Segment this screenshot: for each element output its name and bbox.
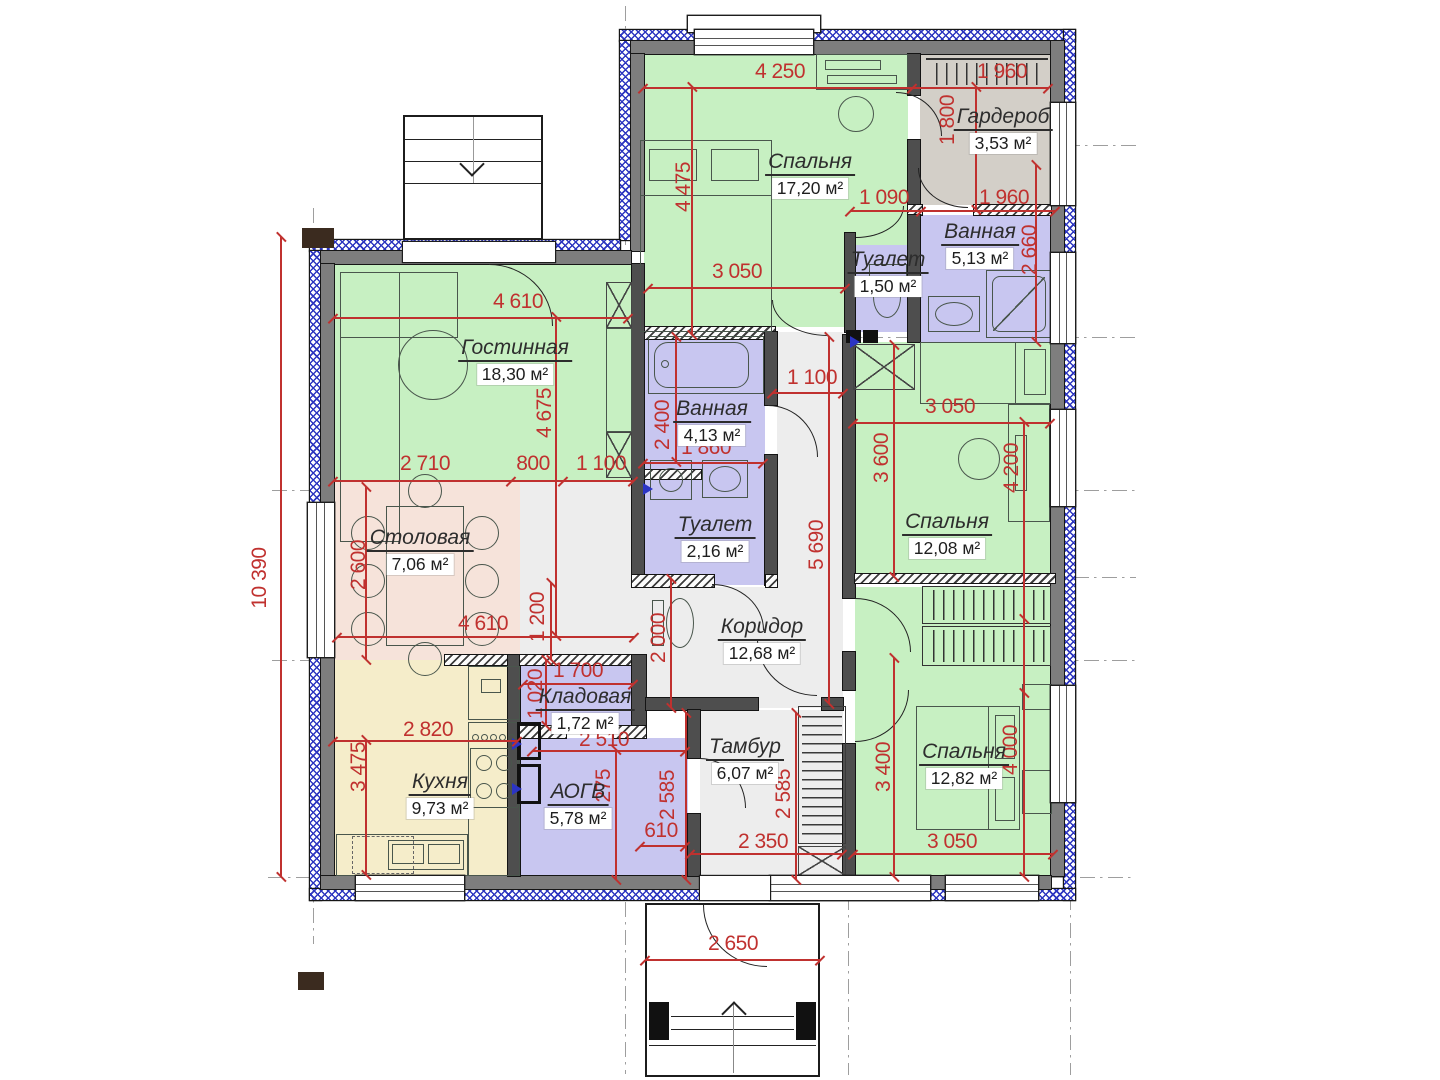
dim-label: 3 050 [927,830,977,854]
axis-line [1070,895,1071,1075]
decoration [711,149,759,181]
dim-line [337,636,634,638]
window [1051,686,1075,802]
closet-row [922,586,1051,624]
decoration [481,679,501,693]
room-label-living: Гостинная 18,30 м² [458,336,572,385]
partition-hatched [445,655,513,665]
decoration [709,466,741,492]
dim-label: 3 400 [872,742,896,792]
decoration [825,60,881,70]
room-area: 5,78 м² [545,808,612,829]
dim-line [648,287,845,289]
decoration [496,755,512,771]
dim-line [1023,619,1025,877]
dim-label: 1 100 [576,452,626,476]
dim-line [640,845,685,847]
decoration [1015,343,1016,403]
room-label-bath-513: Ванная 5,13 м² [941,220,1019,269]
window [946,876,1038,900]
room-area: 6,07 м² [712,763,779,784]
kitchen-unit-dashed [352,836,414,874]
decoration [661,360,669,368]
dim-label: 4 200 [1000,443,1024,493]
room-name: Кухня [409,770,471,796]
sink [928,296,980,332]
room-label-bath-413: Ванная 4,13 м² [673,397,751,446]
dim-label: 2 400 [651,400,675,450]
vent-marker [512,783,522,795]
decoration [946,884,1038,885]
corner-block [298,972,324,990]
decoration [405,183,541,184]
dim-label: 3 600 [870,433,894,483]
nightstand [1022,684,1052,710]
dim-label: 4 610 [493,290,543,314]
decoration [1066,253,1067,343]
room-area: 7,06 м² [387,554,454,575]
decoration [324,503,325,657]
room-area: 18,30 м² [477,364,554,385]
hall-cabinet [798,846,846,876]
window [308,503,334,657]
decoration [641,195,771,196]
dim-line [280,237,282,877]
partition [646,698,758,710]
dim-label: 1 700 [553,659,603,683]
window [770,876,930,900]
cabinet [606,328,632,432]
dim-label: 2 000 [647,613,671,663]
dim-label: 610 [644,819,678,843]
dim-label: 1 090 [859,186,909,210]
room-label-wardrobe: Гардероб 3,53 м² [954,105,1053,154]
room-name: АОГВ [548,780,609,806]
decoration [827,75,897,84]
dim-line [772,392,843,394]
fridge [468,666,520,720]
window [1051,410,1075,506]
partition [843,652,855,690]
decoration [496,783,512,799]
porch-top [403,115,543,240]
room-name: Гостинная [458,336,572,362]
decoration [1059,410,1060,506]
room-area: 3,53 м² [970,133,1037,154]
dim-line [333,480,633,482]
dim-line [850,210,1055,212]
vent-marker [850,336,860,348]
door-opening [700,876,770,900]
door-arc [772,300,828,336]
dim-line [643,462,763,464]
bathtub [648,336,764,394]
dim-line [333,317,628,319]
dim-label: 3 475 [347,742,371,792]
chair [838,96,874,132]
door-opening [403,242,555,262]
arrow-up-icon [721,1001,746,1026]
room-label-bedroom-1208: Спальня 12,08 м² [902,510,992,559]
room-label-corridor: Коридор 12,68 м² [718,615,806,664]
decoration [1066,410,1067,506]
vent-marker [643,483,653,495]
window [1051,253,1075,343]
hall-wardrobe [798,706,846,844]
dim-label: 4 675 [533,388,557,438]
room-name: Столовая [367,526,474,552]
decoration [1059,253,1060,343]
room-label-kitchen: Кухня 9,73 м² [407,770,474,819]
dim-line [550,583,552,660]
chair [351,612,385,646]
room-label-bedroom-17: Спальня 17,20 м² [765,150,855,199]
dim-label: 2 650 [708,932,758,956]
decoration [356,884,464,885]
dim-label: 4 475 [672,162,696,212]
decoration [1059,686,1060,802]
room-name: Кладовая [536,685,635,711]
desk [816,54,908,90]
room-area: 1,50 м² [855,276,922,297]
cabinet-box [606,282,632,328]
room-area: 12,82 м² [926,768,1003,789]
decoration [316,503,317,657]
decoration [356,891,464,892]
chair [958,438,1000,480]
room-area: 2,16 м² [682,541,749,562]
axis-line [1065,145,1137,146]
window [695,30,813,54]
dim-label: 1 960 [979,186,1029,210]
dim-label: 800 [516,452,550,476]
decoration [649,1002,669,1040]
axis-line [848,895,849,1075]
dim-label: 3 050 [925,395,975,419]
room-label-dining: Столовая 7,06 м² [367,526,474,575]
ext-wall [631,41,1051,54]
room-area: 4,13 м² [679,425,746,446]
decoration [695,38,813,39]
dim-label: 2 660 [1018,225,1042,275]
decoration [476,783,492,799]
sofa [340,272,400,542]
dim-label: 5 690 [805,520,829,570]
decoration [1066,103,1067,205]
dim-label: 2 710 [400,452,450,476]
room-name: Тамбур [706,735,784,761]
decoration [993,277,1045,331]
room-name: Гардероб [954,105,1053,131]
room-area: 12,08 м² [909,538,986,559]
dim-label: 4 610 [458,612,508,636]
room-name: Коридор [718,615,806,641]
decoration [796,1002,816,1040]
room-name: Спальня [919,740,1009,766]
ext-wall-insulation [620,41,631,240]
room-area: 9,73 м² [407,798,474,819]
nightstand [1022,770,1052,814]
room-label-pantry: Кладовая 1,72 м² [536,685,635,734]
partition-hatched [855,574,1055,583]
decoration [1059,103,1060,205]
room-label-bedroom-1282: Спальня 12,82 м² [919,740,1009,789]
washing-machine [650,460,692,500]
corner-block [302,228,334,248]
partition [688,814,700,876]
room-area: 17,20 м² [772,178,849,199]
decoration [770,891,930,892]
decoration [476,755,492,771]
dim-label: 1 100 [787,366,837,390]
dim-label: 10 390 [248,547,272,608]
room-label-vestibule: Тамбур 6,07 м² [706,735,784,784]
room-label-toilet-150: Туалет 1,50 м² [848,248,929,297]
dim-line [643,87,1048,89]
dim-label: 2 350 [738,830,788,854]
equipment-block [863,330,878,343]
sink [702,460,748,498]
room-name: Ванная [941,220,1019,246]
dim-label: 2 585 [656,770,680,820]
room-name: Ванная [673,397,751,423]
decoration [1066,686,1067,802]
room-area: 12,68 м² [724,643,801,664]
dim-label: 4 250 [755,60,805,84]
partition-hatched [766,575,777,587]
room-name: Туалет [675,513,756,539]
decoration [659,468,683,492]
vent-shaft [853,344,915,390]
room-name: Туалет [848,248,929,274]
decoration [1024,349,1046,395]
closet-row [922,626,1051,666]
dim-label: 1 960 [977,60,1027,84]
window [1051,103,1075,205]
chair [408,642,442,676]
partition [765,455,777,585]
dim-line [853,422,1050,424]
dim-label: 3 050 [712,260,762,284]
dim-label: 1 200 [526,592,550,642]
room-label-boiler: АОГВ 5,78 м² [545,780,612,829]
arrow-down-icon [459,151,484,176]
decoration [695,45,813,46]
room-label-toilet-216: Туалет 2,16 м² [675,513,756,562]
dim-label: 2 820 [403,718,453,742]
dim-line [645,959,820,961]
shower [986,270,1052,338]
decoration [946,891,1038,892]
decoration [770,884,930,885]
floor-plan: 4 250 1 960 1 800 4 475 1 090 1 960 2 66… [0,0,1440,1080]
bed [640,140,772,332]
room-area: 5,13 м² [947,248,1014,269]
window [356,876,464,900]
stove [470,748,518,808]
decoration [428,844,460,864]
room-name: Спальня [902,510,992,536]
room-name: Спальня [765,150,855,176]
room-area: 1,72 м² [552,713,619,734]
decoration [935,302,973,326]
